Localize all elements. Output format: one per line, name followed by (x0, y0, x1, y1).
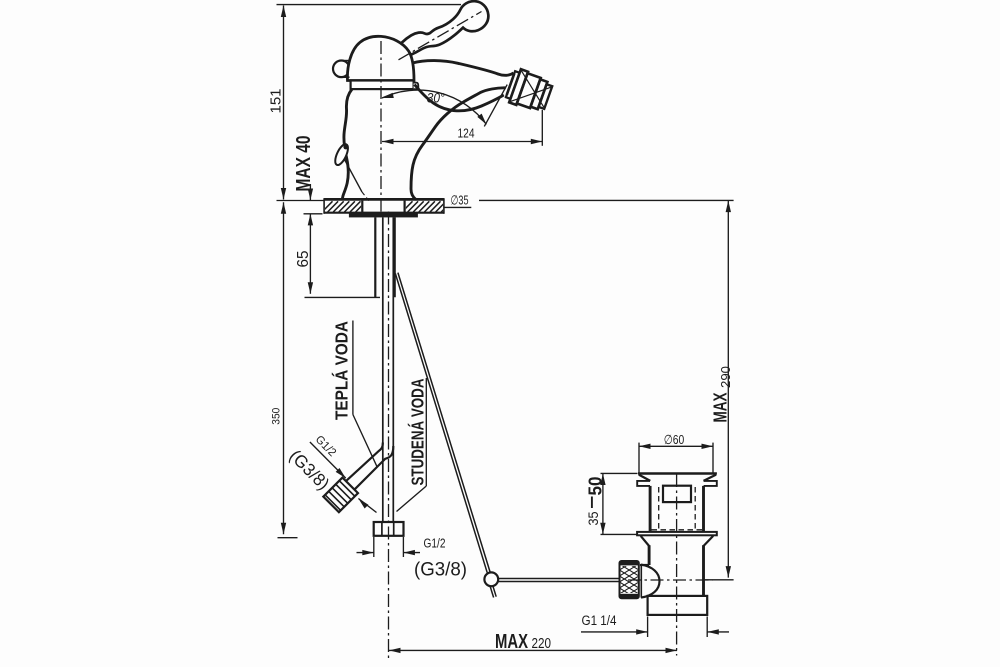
svg-text:290: 290 (718, 366, 733, 388)
svg-text:∅35: ∅35 (451, 193, 469, 208)
svg-text:MAX 40: MAX 40 (293, 136, 315, 192)
svg-text:220: 220 (532, 636, 552, 652)
svg-text:G1 1/4: G1 1/4 (582, 613, 617, 628)
svg-text:50: 50 (584, 477, 605, 496)
svg-text:MAX: MAX (710, 392, 731, 422)
svg-text:MAX: MAX (495, 631, 528, 653)
svg-text:350: 350 (271, 408, 283, 425)
svg-text:30°: 30° (427, 90, 445, 106)
svg-text:TEPLÁ VODA: TEPLÁ VODA (331, 321, 352, 420)
svg-text:G1/2: G1/2 (424, 537, 446, 551)
svg-text:∅60: ∅60 (664, 432, 685, 447)
svg-text:(G3/8): (G3/8) (414, 559, 467, 581)
svg-text:STUDENÁ VODA: STUDENÁ VODA (406, 378, 427, 485)
svg-text:35: 35 (586, 512, 601, 526)
svg-text:151: 151 (268, 89, 284, 114)
svg-text:65: 65 (295, 251, 312, 268)
svg-text:124: 124 (458, 126, 475, 141)
